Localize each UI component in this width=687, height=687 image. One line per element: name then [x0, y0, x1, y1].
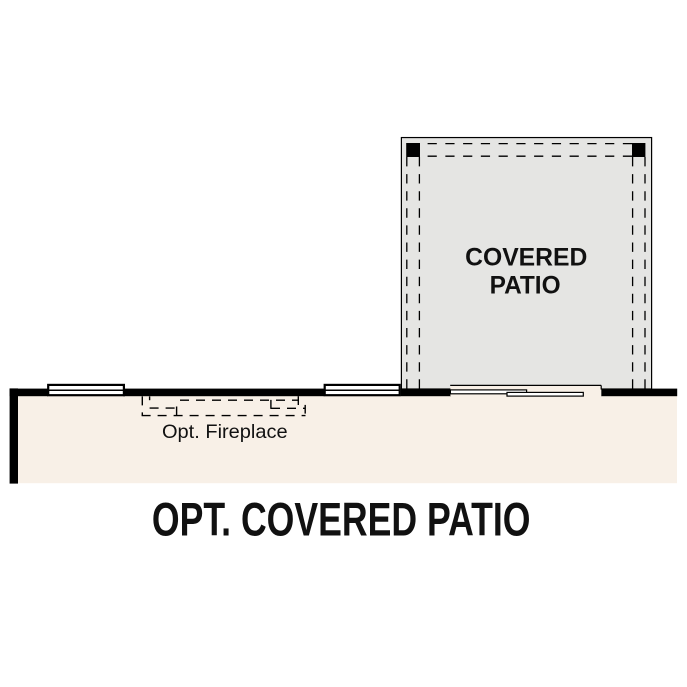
svg-text:COVERED: COVERED	[465, 245, 587, 272]
svg-text:OPT. COVERED PATIO: OPT. COVERED PATIO	[152, 492, 531, 545]
svg-text:PATIO: PATIO	[490, 273, 561, 300]
svg-text:Opt. Fireplace: Opt. Fireplace	[162, 421, 288, 443]
